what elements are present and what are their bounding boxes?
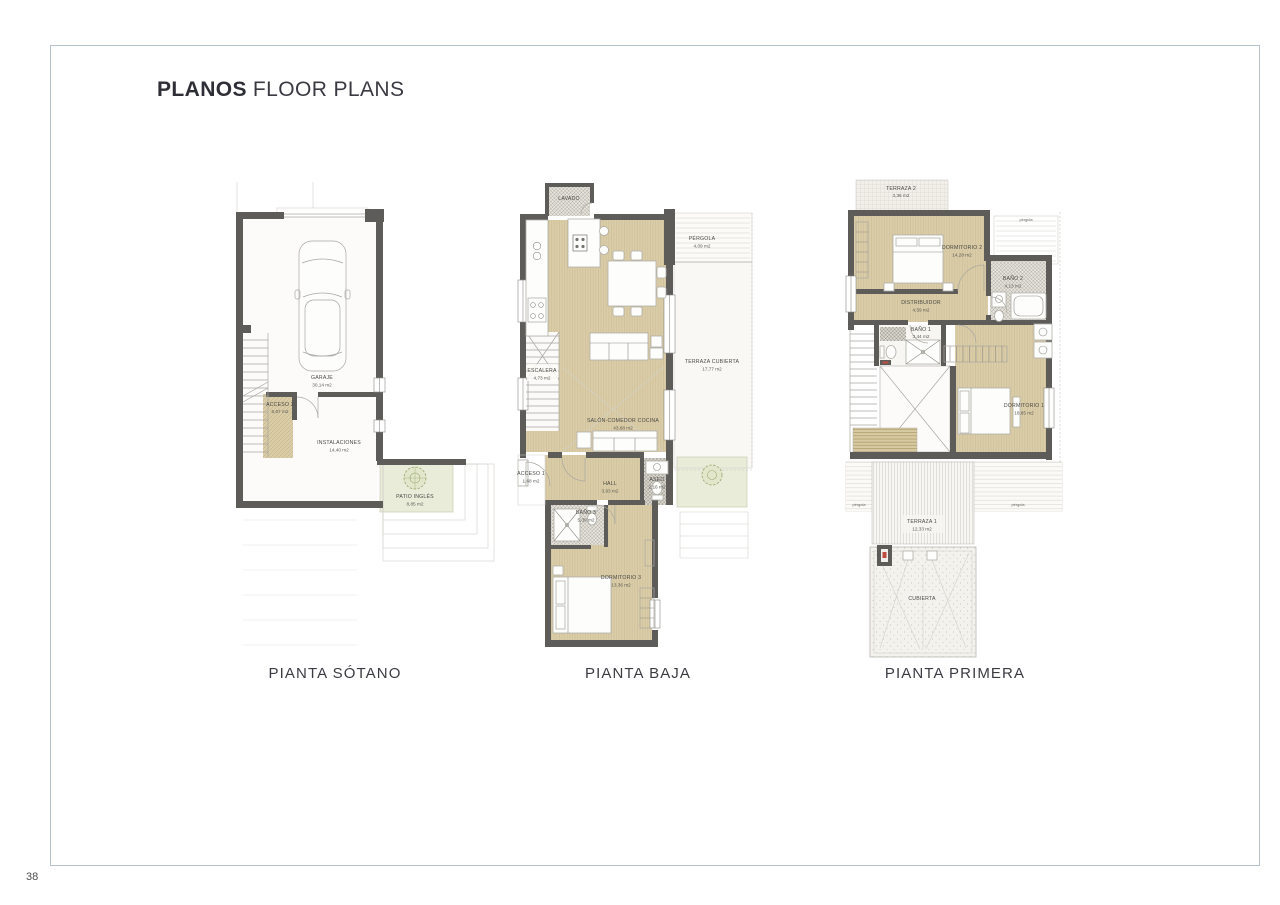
room-area-bano2: 4,13 m2 (1005, 284, 1022, 289)
room-area-pergola: 4,09 m2 (694, 244, 711, 249)
floor-plan-primera: TERRAZA 2 3,36 m2 pérgola DORMITORIO 2 1… (840, 175, 1068, 667)
room-label-aseo: ASEO (649, 477, 664, 483)
room-area-terraza1: 12,33 m2 (912, 527, 932, 532)
room-area-terraza2: 3,36 m2 (893, 193, 910, 198)
plant-icon (404, 467, 426, 489)
room-label-garaje: GARAJE (311, 375, 333, 381)
room-label-terraza1: TERRAZA 1 (907, 519, 937, 525)
room-label-dormitorio3: DORMITORIO 3 (601, 575, 641, 581)
floor-plan-sotano: GARAJE 30,14 m2 ACCESO 2 6,67 m2 INSTALA… (225, 180, 495, 660)
room-area-distribuidor: 4,59 m2 (913, 308, 930, 313)
room-label-dormitorio2: DORMITORIO 2 (942, 245, 982, 251)
caption-planta-sotano: PIANTA SÓTANO (225, 665, 445, 682)
room-label-instalaciones: INSTALACIONES (317, 440, 361, 446)
room-label-terraza-cubierta: TERRAZA CUBIERTA (685, 359, 740, 365)
page-number: 38 (26, 871, 38, 883)
room-label-lavado: LAVADO (558, 196, 579, 202)
room-area-hall: 3,93 m2 (602, 489, 619, 494)
room-area-dormitorio1: 18,85 m2 (1014, 411, 1034, 416)
garage-door (284, 214, 365, 217)
void-double-height (853, 366, 950, 452)
room-label-bano1: BAÑO 1 (911, 326, 931, 333)
room-label-escalera: ESCALERA (527, 368, 557, 374)
room-area-acceso2: 6,67 m2 (272, 409, 289, 414)
room-label-pergola: PÉRGOLA (689, 235, 716, 242)
room-label-cubierta: CUBIERTA (908, 596, 936, 602)
room-area-bano3: 5,39 m2 (578, 518, 595, 523)
room-label-pergola-right: pérgola (1012, 502, 1026, 507)
room-area-instalaciones: 14,40 m2 (329, 448, 349, 453)
room-area-patio-ingles: 8,85 m2 (407, 502, 424, 507)
room-label-bano3: BAÑO 3 (576, 509, 596, 516)
terrace-bottom (846, 462, 1062, 544)
room-area-terraza-cubierta: 17,77 m2 (702, 367, 722, 372)
plant-icon (702, 465, 722, 485)
page-title-secondary: FLOOR PLANS (253, 78, 404, 101)
caption-planta-primera: PIANTA PRIMERA (845, 665, 1065, 682)
room-area-aseo: 2,16 m2 (649, 485, 666, 490)
floors (242, 217, 453, 512)
room-label-dormitorio1: DORMITORIO 1 (1004, 403, 1044, 409)
page-title-primary: PLANOS (157, 78, 247, 101)
room-area-dormitorio2: 14,28 m2 (952, 253, 972, 258)
caption-planta-baja: PIANTA BAJA (528, 665, 748, 682)
room-area-acceso1: 1,68 m2 (523, 479, 540, 484)
car-icon (295, 241, 350, 371)
room-label-pergola-top: pérgola (1020, 217, 1034, 222)
room-label-pergola-left: pérgola (853, 502, 867, 507)
room-label-hall: HALL (603, 481, 617, 487)
room-label-patio-ingles: PATIO INGLÉS (396, 493, 434, 500)
bathroom2-fixtures (992, 292, 1046, 322)
patio-steps (680, 512, 748, 558)
room-label-terraza2: TERRAZA 2 (886, 186, 916, 192)
room-label-bano2: BAÑO 2 (1003, 275, 1023, 282)
room-area-escalera: 4,73 m2 (534, 376, 551, 381)
room-label-salon: SALÓN-COMEDOR COCINA (587, 417, 659, 424)
room-area-bano1: 3,44 m2 (913, 334, 930, 339)
room-area-salon: 43,68 m2 (613, 426, 633, 431)
room-area-garaje: 30,14 m2 (312, 383, 332, 388)
room-label-distribuidor: DISTRIBUIDOR (901, 300, 941, 306)
room-label-acceso2: ACCESO 2 (266, 402, 294, 408)
floor-plan-baja: LAVADO PÉRGOLA 4,09 m2 TERRAZA CUBIERTA … (512, 180, 757, 670)
room-area-dormitorio3: 13,36 m2 (611, 583, 631, 588)
room-label-acceso1: ACCESO 1 (517, 471, 545, 477)
page-title: PLANOSFLOOR PLANS (157, 78, 404, 102)
brochure-page: PLANOSFLOOR PLANS (0, 0, 1280, 905)
